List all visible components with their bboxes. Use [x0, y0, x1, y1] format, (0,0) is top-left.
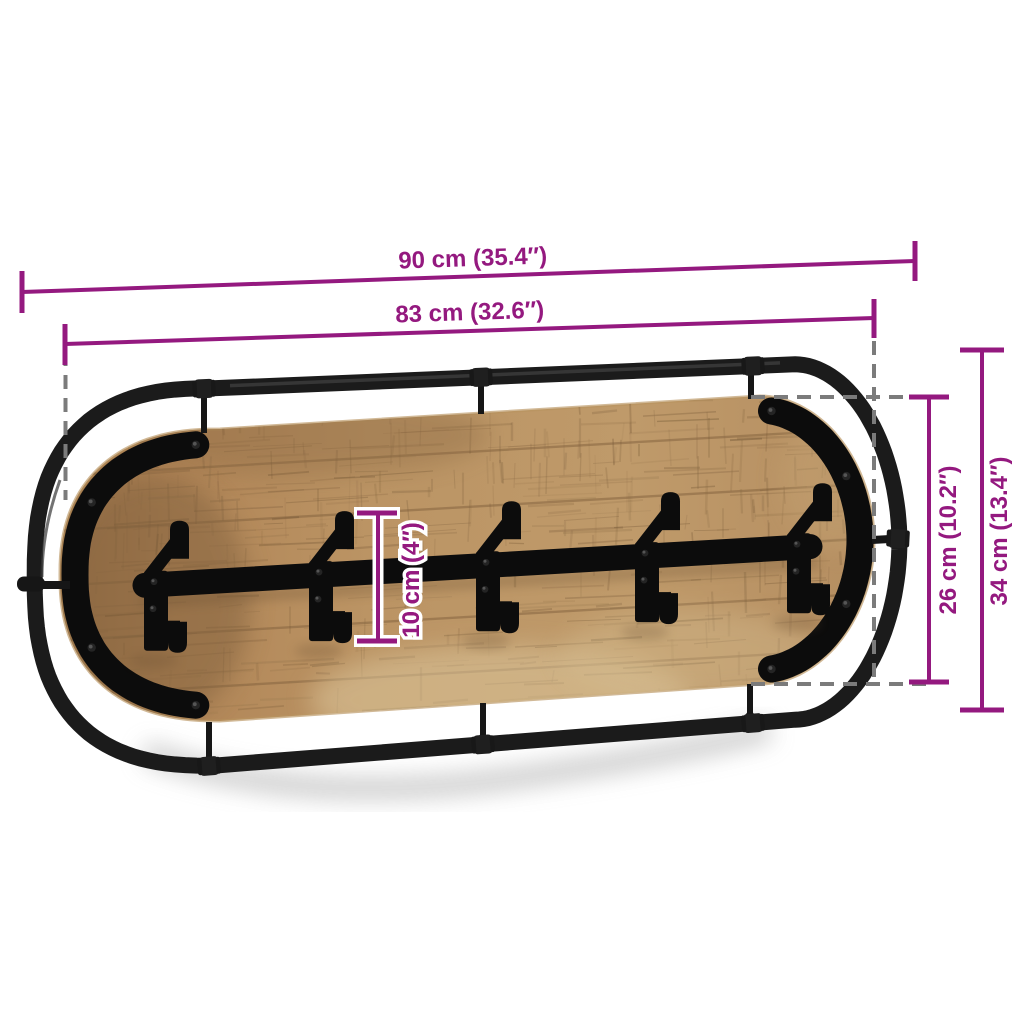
svg-text:10 cm (4″): 10 cm (4″)	[398, 522, 425, 638]
svg-text:83 cm (32.6″): 83 cm (32.6″)	[395, 297, 545, 329]
svg-text:34 cm (13.4″): 34 cm (13.4″)	[986, 457, 1013, 606]
svg-text:90 cm (35.4″): 90 cm (35.4″)	[398, 242, 548, 274]
svg-text:26 cm (10.2″): 26 cm (10.2″)	[935, 466, 962, 615]
